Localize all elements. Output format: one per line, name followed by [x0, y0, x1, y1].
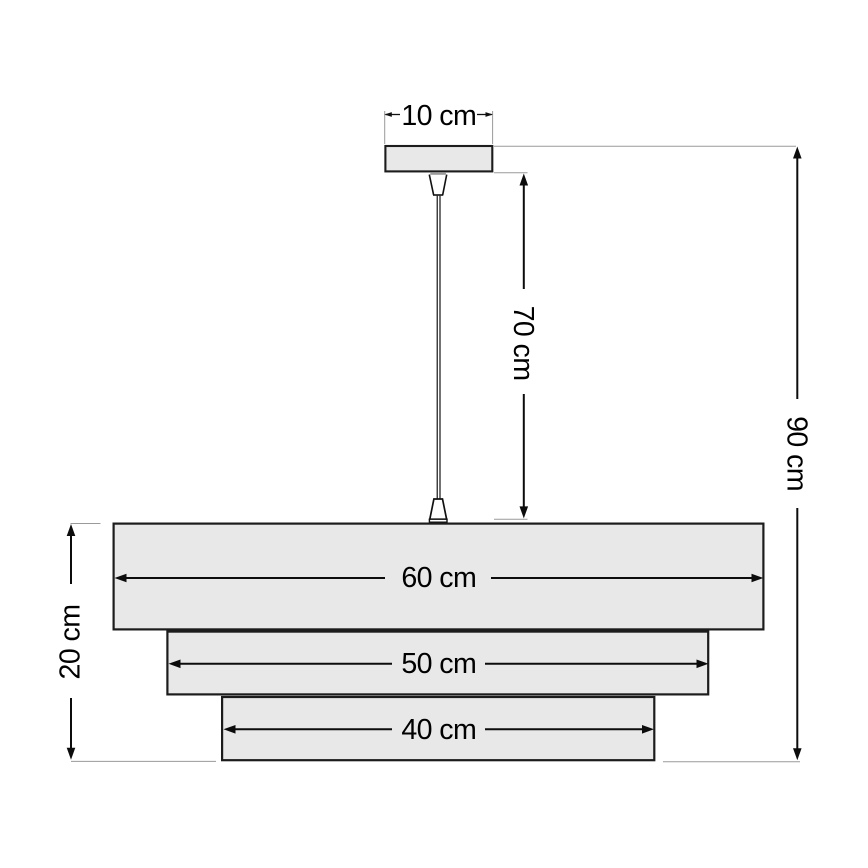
svg-text:70 cm: 70 cm	[507, 306, 539, 381]
svg-text:90 cm: 90 cm	[781, 416, 813, 491]
svg-text:50 cm: 50 cm	[401, 648, 476, 680]
svg-text:40 cm: 40 cm	[401, 714, 476, 746]
svg-text:10 cm: 10 cm	[401, 100, 476, 132]
svg-text:60 cm: 60 cm	[401, 562, 476, 594]
svg-text:20 cm: 20 cm	[55, 605, 87, 680]
